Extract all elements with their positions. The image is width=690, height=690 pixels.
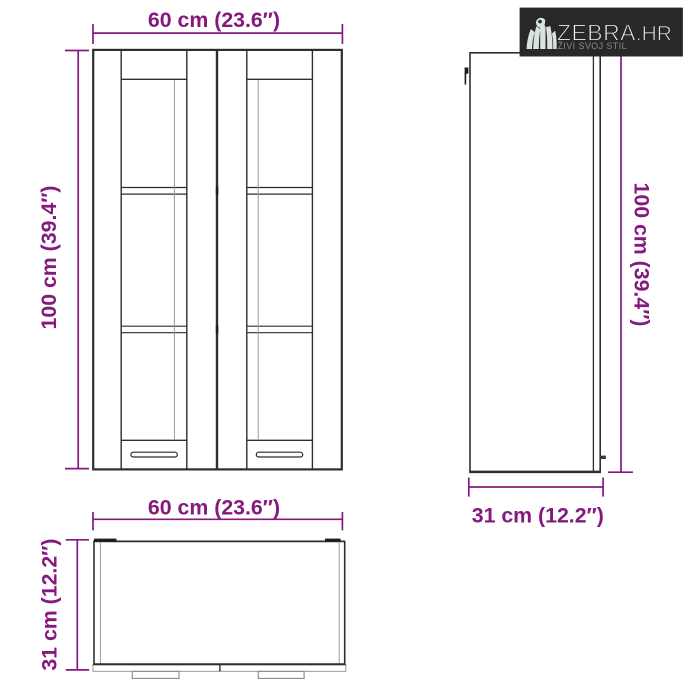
svg-text:60 cm (23.6″): 60 cm (23.6″) <box>148 496 280 520</box>
svg-text:31 cm (12.2″): 31 cm (12.2″) <box>38 539 62 671</box>
svg-text:100 cm (39.4″): 100 cm (39.4″) <box>630 183 654 327</box>
svg-text:31 cm (12.2″): 31 cm (12.2″) <box>472 504 604 528</box>
svg-text:.HR: .HR <box>636 23 672 46</box>
svg-text:ŽIVI SVOJ STIL: ŽIVI SVOJ STIL <box>558 41 628 51</box>
svg-text:60 cm (23.6″): 60 cm (23.6″) <box>148 8 280 32</box>
svg-text:100 cm (39.4″): 100 cm (39.4″) <box>37 186 61 330</box>
